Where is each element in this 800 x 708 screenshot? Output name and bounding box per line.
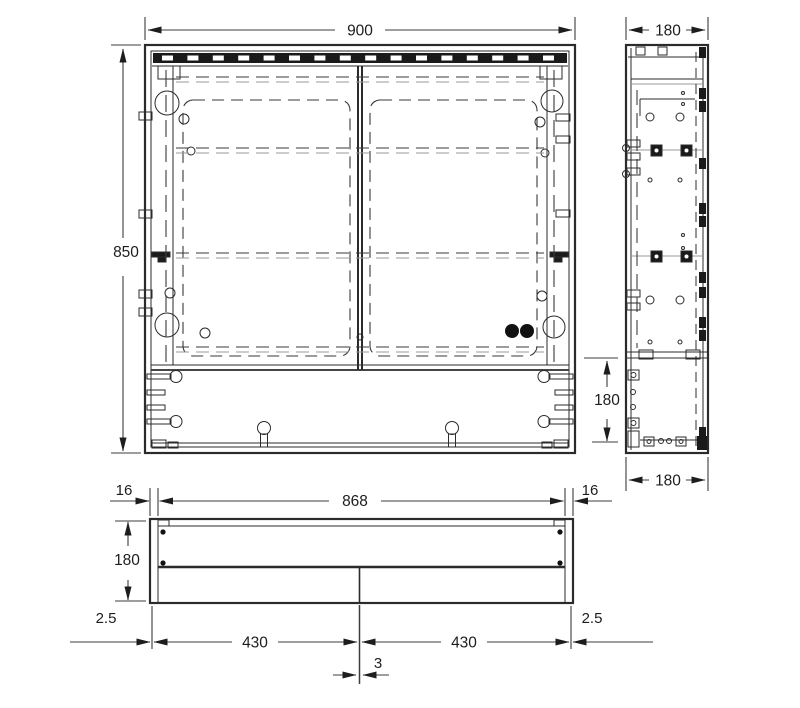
label-bottom-offset-right: 2.5 bbox=[582, 610, 603, 627]
label-front-height: 850 bbox=[113, 244, 139, 261]
label-front-lower-height: 180 bbox=[594, 392, 620, 409]
shelf-lines bbox=[176, 77, 544, 352]
screw-dots bbox=[160, 529, 562, 565]
dim-bottom-doors bbox=[70, 605, 653, 684]
bottom-pins bbox=[152, 422, 568, 449]
side-wall-fittings bbox=[139, 112, 570, 316]
label-bottom-door-left: 430 bbox=[242, 635, 268, 652]
label-bottom-depth: 180 bbox=[114, 552, 140, 569]
socket-dots bbox=[505, 324, 534, 338]
side-view bbox=[623, 45, 709, 453]
front-view bbox=[139, 45, 575, 453]
label-bottom-offset-left: 2.5 bbox=[96, 610, 117, 627]
label-front-width: 900 bbox=[347, 23, 373, 40]
bottom-view bbox=[150, 519, 573, 603]
label-bottom-center-gap: 3 bbox=[374, 655, 382, 672]
label-bottom-wall-right: 16 bbox=[582, 482, 599, 499]
cabinet-drawing: 900 850 180 180 180 16 868 16 180 2.5 43… bbox=[0, 0, 800, 708]
front-hidden-lines bbox=[166, 70, 554, 362]
label-bottom-wall-left: 16 bbox=[116, 482, 133, 499]
led-strip bbox=[153, 53, 567, 63]
shelf-brackets bbox=[651, 145, 692, 262]
hinge-cups bbox=[155, 90, 565, 340]
technical-drawing-page: 900 850 180 180 180 16 868 16 180 2.5 43… bbox=[0, 0, 800, 708]
side-lower-fittings bbox=[628, 370, 707, 450]
label-side-depth-top: 180 bbox=[655, 23, 681, 40]
shelf-pin-holes bbox=[646, 92, 685, 345]
wall-mount-pegs bbox=[147, 371, 573, 428]
label-bottom-inner-width: 868 bbox=[342, 493, 368, 510]
label-bottom-door-right: 430 bbox=[451, 635, 477, 652]
label-side-depth-bottom: 180 bbox=[655, 473, 681, 490]
